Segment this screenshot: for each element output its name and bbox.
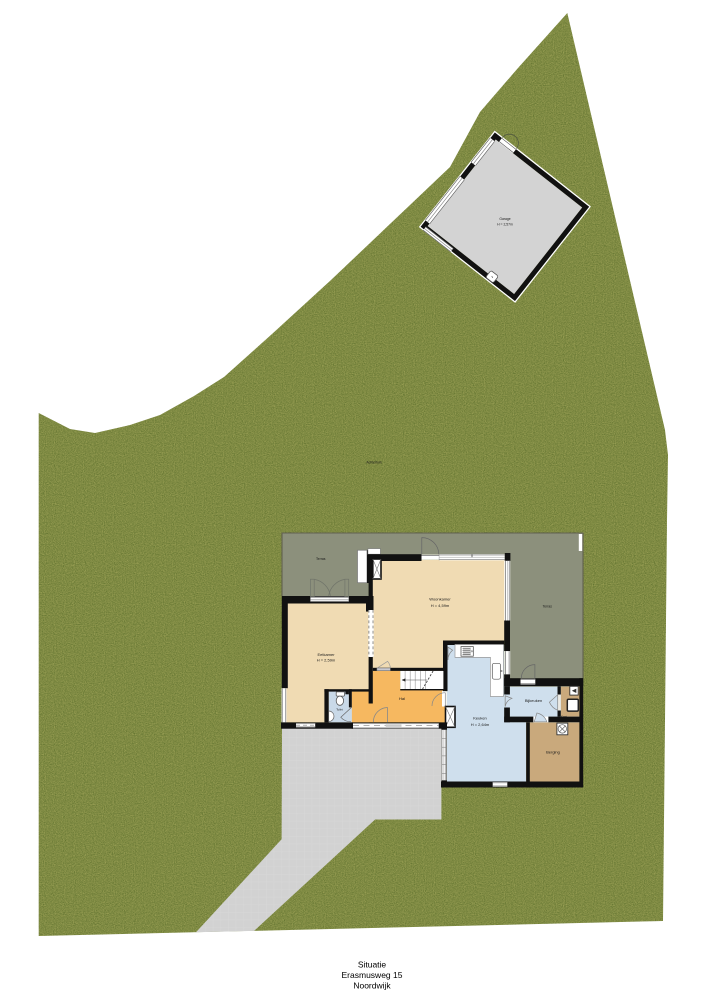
- svg-text:Bijkeuken: Bijkeuken: [525, 698, 542, 703]
- svg-text:Noordwijk: Noordwijk: [353, 981, 391, 991]
- svg-text:Terras: Terras: [316, 557, 326, 561]
- svg-text:Hal: Hal: [399, 696, 405, 701]
- svg-text:Woonkamer: Woonkamer: [429, 597, 451, 602]
- svg-text:Eetkamer: Eetkamer: [317, 652, 335, 657]
- svg-text:Garage: Garage: [499, 217, 510, 221]
- svg-text:H = 2,59m: H = 2,59m: [317, 657, 336, 662]
- svg-text:Keuken: Keuken: [473, 716, 487, 721]
- svg-text:Berging: Berging: [546, 750, 560, 755]
- svg-text:H = 2,64m: H = 2,64m: [471, 722, 490, 727]
- svg-text:Situatie: Situatie: [358, 960, 387, 970]
- svg-text:Erasmusweg 15: Erasmusweg 15: [342, 970, 403, 980]
- svg-text:Kast: Kast: [561, 714, 567, 718]
- svg-text:H = 2,57m: H = 2,57m: [497, 222, 513, 226]
- svg-text:Terras: Terras: [543, 604, 553, 608]
- svg-text:Achtertuin: Achtertuin: [366, 461, 381, 465]
- svg-text:H = 4,59m: H = 4,59m: [431, 603, 450, 608]
- svg-text:Toilet: Toilet: [336, 708, 343, 712]
